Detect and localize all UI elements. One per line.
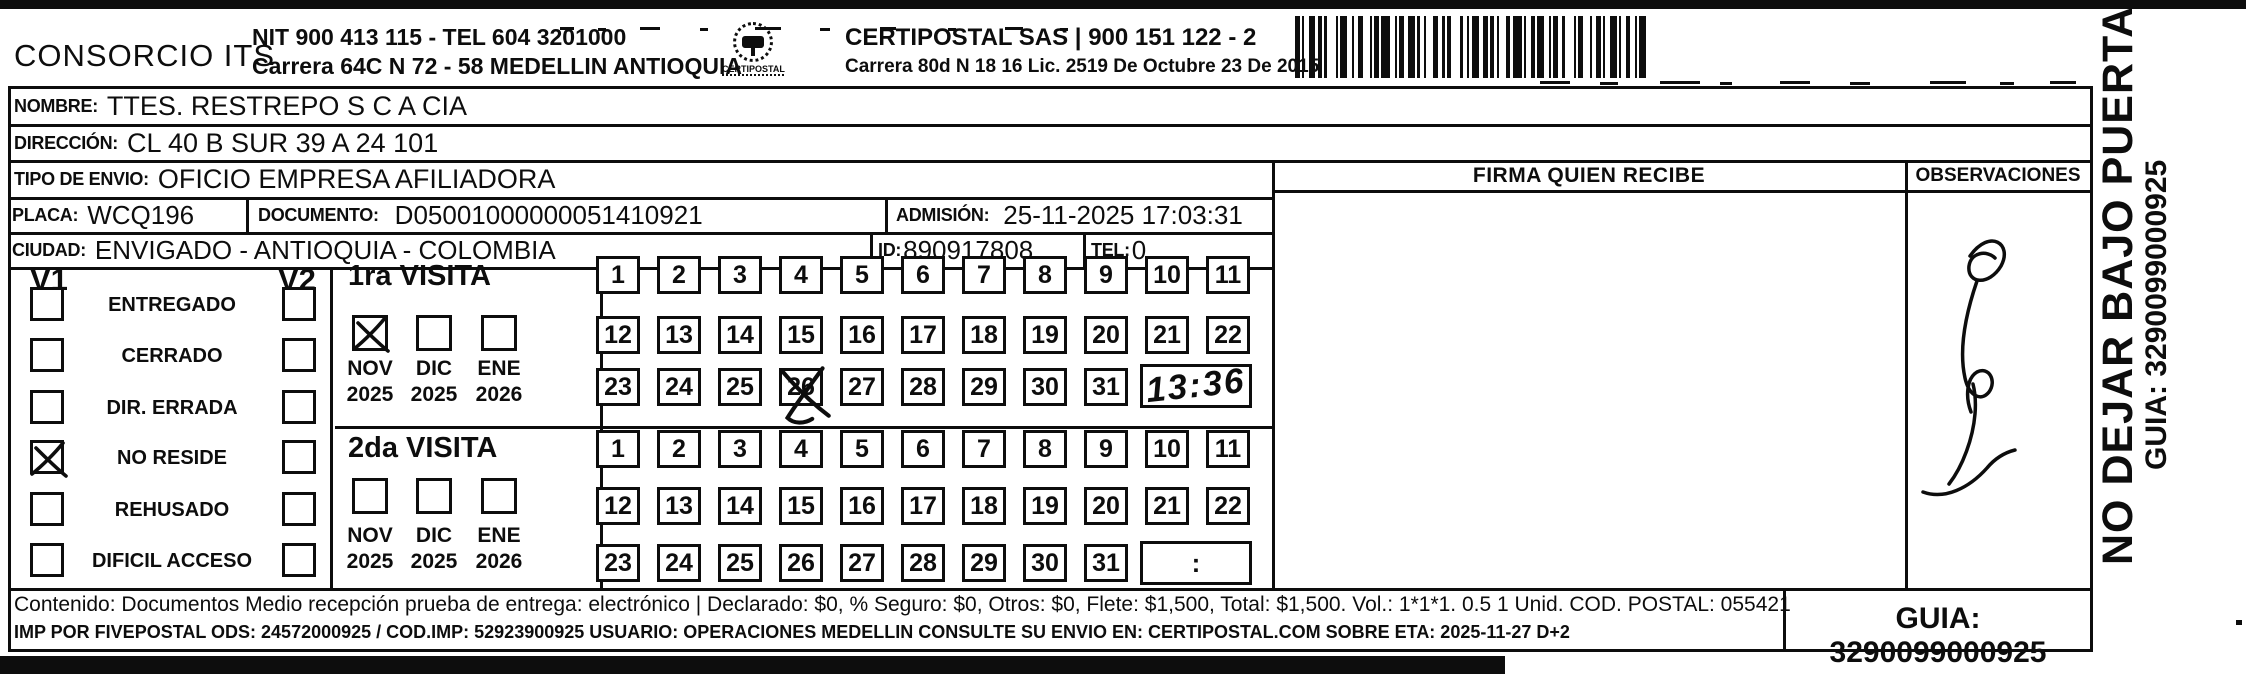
visit1-day-5[interactable]: 5: [840, 256, 884, 294]
visit1-day-30[interactable]: 30: [1023, 368, 1067, 406]
visit2-day-26[interactable]: 26: [779, 544, 823, 582]
visit1-day-6[interactable]: 6: [901, 256, 945, 294]
visit1-time-box[interactable]: 13:36: [1140, 364, 1252, 408]
recipient-signature: [1915, 226, 2020, 511]
status-label-dir-errada: DIR. ERRADA: [68, 397, 276, 420]
visit2-day-10[interactable]: 10: [1145, 430, 1189, 468]
month-year-label: 2025: [338, 550, 402, 574]
barcode: [1295, 16, 1651, 78]
month-label: DIC: [402, 357, 466, 381]
scan-artifact-top-bar: [0, 0, 2246, 9]
visit1-day-7[interactable]: 7: [962, 256, 1006, 294]
status-label-entregado: ENTREGADO: [68, 294, 276, 317]
visit2-day-16[interactable]: 16: [840, 487, 884, 525]
placa-label: PLACA:: [12, 205, 78, 226]
certipostal-logo: CERTIPOSTAL: [722, 22, 784, 76]
observaciones-header: OBSERVACIONES: [1908, 165, 2088, 187]
handwritten-x-mark: [351, 314, 391, 354]
visit2-day-5[interactable]: 5: [840, 430, 884, 468]
nombre-value: TTES. RESTREPO S C A CIA: [107, 91, 467, 122]
visit2-day-22[interactable]: 22: [1206, 487, 1250, 525]
visit2-day-9[interactable]: 9: [1084, 430, 1128, 468]
side-banner-guia: GUIA: 3290099000925: [2140, 155, 2174, 475]
month-label: ENE: [467, 524, 531, 548]
visit1-day-18[interactable]: 18: [962, 316, 1006, 354]
visit2-day-8[interactable]: 8: [1023, 430, 1067, 468]
visit1-day-31[interactable]: 31: [1084, 368, 1128, 406]
visit1-day-27[interactable]: 27: [840, 368, 884, 406]
certipostal-logo-text: CERTIPOSTAL: [722, 64, 784, 76]
visit-title-1: 1ra VISITA: [348, 260, 491, 293]
footer-print-line: IMP POR FIVEPOSTAL ODS: 24572000925 / CO…: [14, 622, 1570, 643]
v2-checkbox-no-reside[interactable]: [282, 440, 316, 474]
visit2-day-29[interactable]: 29: [962, 544, 1006, 582]
visit1-day-16[interactable]: 16: [840, 316, 884, 354]
v2-checkbox-cerrado[interactable]: [282, 338, 316, 372]
direccion-label: DIRECCIÓN:: [14, 133, 118, 154]
time-placeholder: :: [1192, 548, 1201, 579]
handwritten-x-mark: [29, 439, 69, 479]
visit1-day-11[interactable]: 11: [1206, 256, 1250, 294]
certipostal-logo-icon: [733, 22, 773, 62]
visit1-day-10[interactable]: 10: [1145, 256, 1189, 294]
visit2-month-checkbox-nov[interactable]: [352, 478, 388, 514]
visit1-day-9[interactable]: 9: [1084, 256, 1128, 294]
visit1-day-2[interactable]: 2: [657, 256, 701, 294]
month-label: NOV: [338, 357, 402, 381]
visit2-day-21[interactable]: 21: [1145, 487, 1189, 525]
visit2-month-checkbox-ene[interactable]: [481, 478, 517, 514]
visit1-day-28[interactable]: 28: [901, 368, 945, 406]
visit2-day-17[interactable]: 17: [901, 487, 945, 525]
nombre-label: NOMBRE:: [14, 96, 98, 117]
side-banner-instruction: NO DEJAR BAJO PUERTA: [2094, 100, 2143, 565]
visit1-day-3[interactable]: 3: [718, 256, 762, 294]
consorcio-nit-line: NIT 900 413 115 - TEL 604 3201000: [252, 24, 626, 51]
v1-checkbox-dir-errada[interactable]: [30, 390, 64, 424]
status-label-dificil-acceso: DIFICIL ACCESO: [68, 550, 276, 573]
visit1-day-22[interactable]: 22: [1206, 316, 1250, 354]
visit2-day-4[interactable]: 4: [779, 430, 823, 468]
status-label-no-reside: NO RESIDE: [68, 447, 276, 470]
visit1-day-19[interactable]: 19: [1023, 316, 1067, 354]
visit1-month-checkbox-ene[interactable]: [481, 315, 517, 351]
visit2-month-checkbox-dic[interactable]: [416, 478, 452, 514]
visit2-day-11[interactable]: 11: [1206, 430, 1250, 468]
visit1-day-13[interactable]: 13: [657, 316, 701, 354]
operator-line: CERTIPOSTAL SAS | 900 151 122 - 2: [845, 24, 1256, 52]
month-label: NOV: [338, 524, 402, 548]
visit2-day-23[interactable]: 23: [596, 544, 640, 582]
visit2-day-14[interactable]: 14: [718, 487, 762, 525]
handwritten-day-cross: [771, 358, 837, 424]
v2-checkbox-dir-errada[interactable]: [282, 390, 316, 424]
admision-value: 25-11-2025 17:03:31: [1003, 200, 1243, 231]
visit2-day-3[interactable]: 3: [718, 430, 762, 468]
v2-checkbox-rehusado[interactable]: [282, 492, 316, 526]
month-year-label: 2026: [467, 383, 531, 407]
visit2-day-19[interactable]: 19: [1023, 487, 1067, 525]
visit1-day-1[interactable]: 1: [596, 256, 640, 294]
status-label-cerrado: CERRADO: [68, 345, 276, 368]
visit2-day-13[interactable]: 13: [657, 487, 701, 525]
footer-guia: GUIA: 3290099000925: [1786, 602, 2090, 670]
visit2-day-30[interactable]: 30: [1023, 544, 1067, 582]
v2-checkbox-entregado[interactable]: [282, 287, 316, 321]
visit1-day-24[interactable]: 24: [657, 368, 701, 406]
v1-checkbox-no-reside[interactable]: [30, 440, 64, 474]
visit1-day-8[interactable]: 8: [1023, 256, 1067, 294]
month-year-label: 2025: [338, 383, 402, 407]
ciudad-label: CIUDAD:: [12, 240, 86, 261]
tipo-envio-value: OFICIO EMPRESA AFILIADORA: [158, 164, 556, 195]
visit1-day-15[interactable]: 15: [779, 316, 823, 354]
visit2-day-20[interactable]: 20: [1084, 487, 1128, 525]
visit2-day-1[interactable]: 1: [596, 430, 640, 468]
placa-value: WCQ196: [87, 200, 194, 231]
visit1-month-checkbox-dic[interactable]: [416, 315, 452, 351]
month-label: DIC: [402, 524, 466, 548]
visit2-day-15[interactable]: 15: [779, 487, 823, 525]
v1-checkbox-cerrado[interactable]: [30, 338, 64, 372]
visit2-day-6[interactable]: 6: [901, 430, 945, 468]
visit1-day-29[interactable]: 29: [962, 368, 1006, 406]
consorcio-address-line: Carrera 64C N 72 - 58 MEDELLIN ANTIOQUIA: [252, 53, 742, 80]
tipo-envio-label: TIPO DE ENVIO:: [14, 169, 149, 190]
month-year-label: 2025: [402, 550, 466, 574]
month-year-label: 2026: [467, 550, 531, 574]
visit1-day-14[interactable]: 14: [718, 316, 762, 354]
v1-checkbox-rehusado[interactable]: [30, 492, 64, 526]
consorcio-title: CONSORCIO ITS: [14, 38, 275, 74]
month-year-label: 2025: [402, 383, 466, 407]
documento-value: D05001000000051410921: [395, 200, 703, 231]
visit2-day-2[interactable]: 2: [657, 430, 701, 468]
visit2-time-box[interactable]: :: [1140, 541, 1252, 585]
month-label: ENE: [467, 357, 531, 381]
visit2-day-7[interactable]: 7: [962, 430, 1006, 468]
visit2-day-18[interactable]: 18: [962, 487, 1006, 525]
visit1-day-17[interactable]: 17: [901, 316, 945, 354]
scan-artifact-bottom-bar: [0, 656, 1505, 674]
v1-checkbox-dificil-acceso[interactable]: [30, 543, 64, 577]
v2-checkbox-dificil-acceso[interactable]: [282, 543, 316, 577]
visit2-day-25[interactable]: 25: [718, 544, 762, 582]
visit1-day-4[interactable]: 4: [779, 256, 823, 294]
status-label-rehusado: REHUSADO: [68, 499, 276, 522]
visit1-day-12[interactable]: 12: [596, 316, 640, 354]
visit1-day-25[interactable]: 25: [718, 368, 762, 406]
v1-checkbox-entregado[interactable]: [30, 287, 64, 321]
admision-label: ADMISIÓN:: [896, 205, 989, 226]
visit2-day-27[interactable]: 27: [840, 544, 884, 582]
visit-title-2: 2da VISITA: [348, 432, 497, 465]
shipping-label-scan: CONSORCIO ITS NIT 900 413 115 - TEL 604 …: [0, 0, 2246, 674]
visit1-day-21[interactable]: 21: [1145, 316, 1189, 354]
firma-header: FIRMA QUIEN RECIBE: [1275, 164, 1903, 188]
visit2-day-12[interactable]: 12: [596, 487, 640, 525]
visit2-day-28[interactable]: 28: [901, 544, 945, 582]
handwritten-time: 13:36: [1144, 361, 1247, 411]
visit1-month-checkbox-nov[interactable]: [352, 315, 388, 351]
documento-label: DOCUMENTO:: [258, 205, 379, 226]
operator-address-line: Carrera 80d N 18 16 Lic. 2519 De Octubre…: [845, 56, 1319, 78]
visit2-day-31[interactable]: 31: [1084, 544, 1128, 582]
direccion-value: CL 40 B SUR 39 A 24 101: [127, 128, 438, 159]
visit1-day-23[interactable]: 23: [596, 368, 640, 406]
footer-content-line: Contenido: Documentos Medio recepción pr…: [14, 593, 1791, 617]
visit1-day-20[interactable]: 20: [1084, 316, 1128, 354]
visit2-day-24[interactable]: 24: [657, 544, 701, 582]
